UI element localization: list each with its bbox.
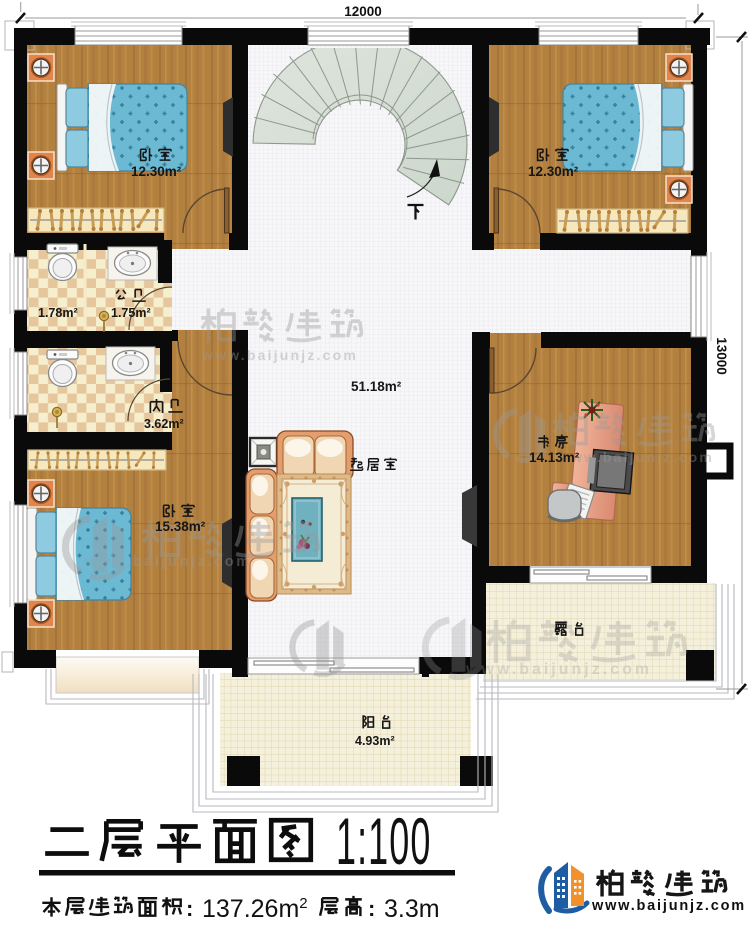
svg-text:www.baijunjz.com: www.baijunjz.com <box>465 661 652 678</box>
svg-text:3.62m²: 3.62m² <box>144 417 184 431</box>
svg-text:13000: 13000 <box>714 337 729 375</box>
svg-text:3.3m: 3.3m <box>384 895 440 923</box>
svg-text:12000: 12000 <box>344 4 382 19</box>
svg-text:137.26m2: 137.26m2 <box>202 895 308 923</box>
svg-text:www.baijunjz.com: www.baijunjz.com <box>591 898 746 914</box>
svg-text:12.30m²: 12.30m² <box>131 164 182 179</box>
svg-text:1:100: 1:100 <box>336 806 431 879</box>
svg-text:12.30m²: 12.30m² <box>528 164 579 179</box>
svg-text::: : <box>186 896 193 921</box>
svg-text:1.78m²: 1.78m² <box>38 306 78 320</box>
svg-text:51.18m²: 51.18m² <box>351 379 402 394</box>
svg-text::: : <box>368 896 375 921</box>
svg-text:1.75m²: 1.75m² <box>111 306 151 320</box>
svg-text:www.baijunjz.com: www.baijunjz.com <box>201 347 358 363</box>
svg-text:www.baijunjz.com: www.baijunjz.com <box>84 554 252 570</box>
svg-text:14.13m²: 14.13m² <box>529 450 580 465</box>
svg-text:4.93m²: 4.93m² <box>355 734 395 748</box>
svg-text:15.38m²: 15.38m² <box>155 519 206 534</box>
svg-text:www.baijunjz.com: www.baijunjz.com <box>557 449 714 465</box>
